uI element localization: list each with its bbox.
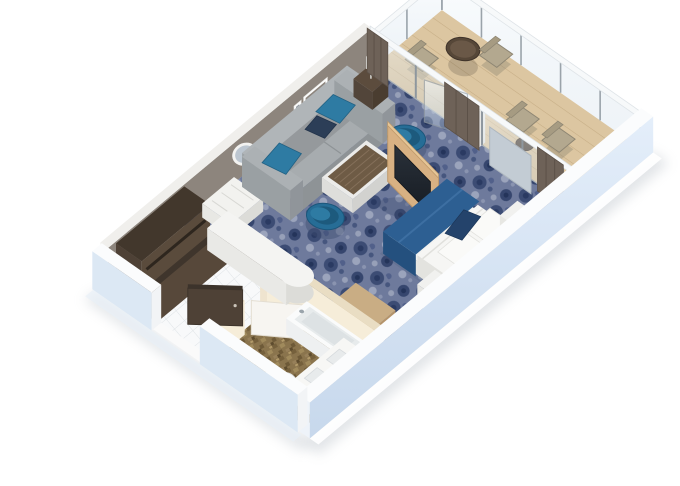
floorplan-image — [0, 0, 680, 486]
entry-end-wall-side-front — [298, 387, 308, 433]
entry-door — [188, 284, 243, 326]
door-handle — [234, 304, 237, 307]
floorplan-svg — [0, 0, 680, 486]
door-panel — [188, 288, 243, 326]
entry-end-wall-side-front — [152, 285, 162, 331]
